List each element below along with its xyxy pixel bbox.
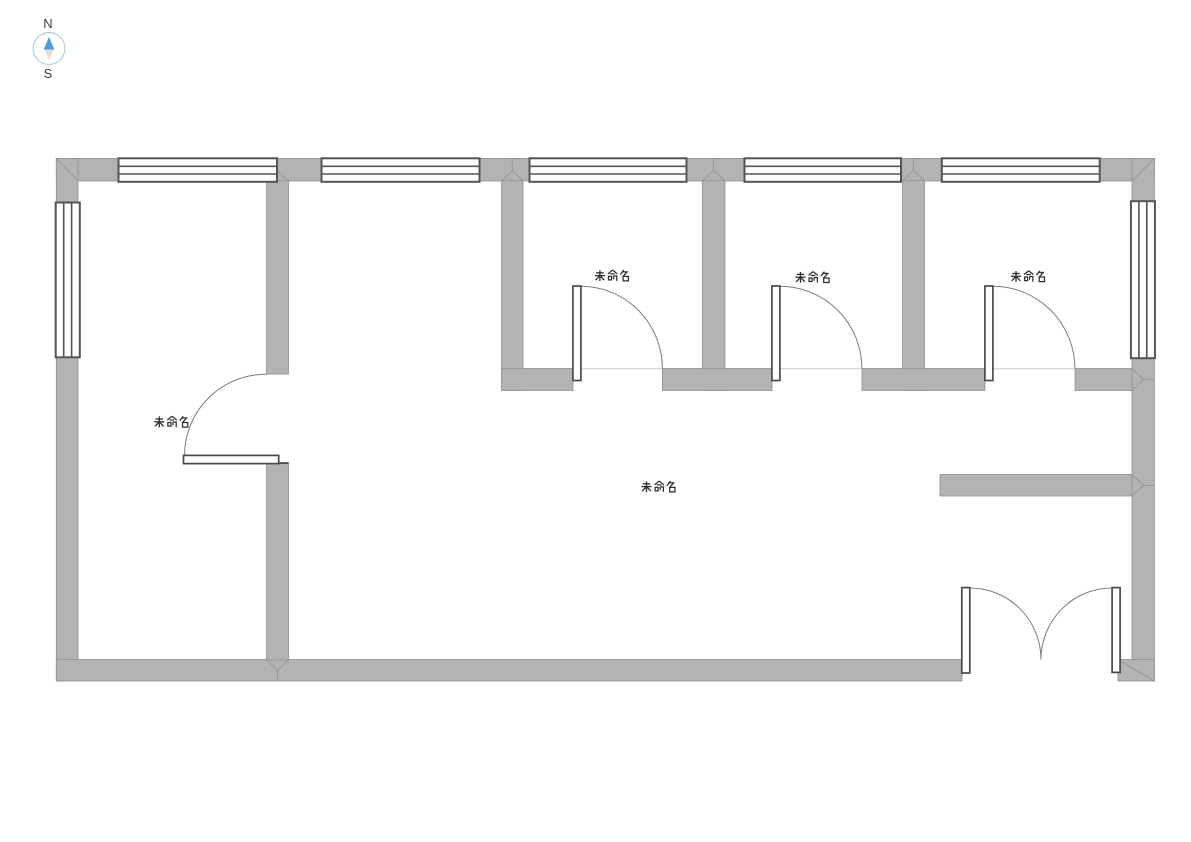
svg-text:N: N bbox=[43, 16, 52, 31]
svg-text:S: S bbox=[44, 66, 53, 81]
